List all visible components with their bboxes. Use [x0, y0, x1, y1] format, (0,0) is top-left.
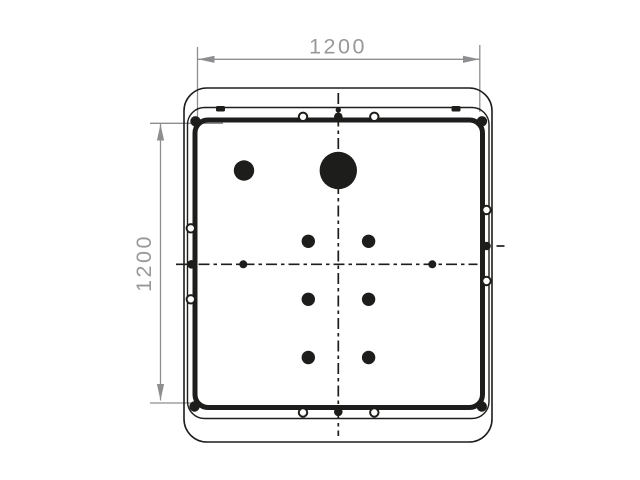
mount-hole — [362, 235, 375, 248]
mount-hole — [362, 293, 375, 306]
mount-hole — [302, 351, 315, 364]
fastener-hole-right-lower — [482, 277, 490, 285]
corner-fastener — [477, 401, 487, 411]
fastener-dot-bottom — [334, 408, 343, 417]
fastener-hole-bottom-right — [370, 408, 378, 416]
clip-tab-left — [216, 106, 225, 112]
dimension-height-label: 1200 — [132, 234, 156, 292]
fastener-dot-top — [334, 113, 343, 122]
fastener-hole-left-lower — [187, 295, 195, 303]
fastener-hole-bottom-left — [299, 408, 307, 416]
corner-fastener — [190, 116, 200, 126]
clip-tab-right — [452, 106, 461, 112]
arrowhead-right-icon — [463, 56, 480, 63]
fastener-hole-top-right — [370, 113, 378, 121]
fastener-hole-top-left — [299, 113, 307, 121]
dimension-height — [150, 123, 223, 403]
fastener-dot-right — [482, 242, 491, 251]
hole-large-center — [320, 152, 357, 189]
arrowhead-left-icon — [198, 56, 215, 63]
fastener-dot-left — [187, 260, 196, 269]
corner-fastener — [477, 116, 487, 126]
centerline-marker-dot-right — [428, 260, 436, 268]
arrowhead-up-icon — [157, 124, 164, 141]
hole-medium-left — [234, 160, 254, 180]
fastener-dot-top-rim — [336, 107, 341, 112]
corner-fastener — [189, 401, 199, 411]
mount-hole — [362, 351, 375, 364]
dimension-width-label: 1200 — [309, 35, 367, 59]
centerline-marker-dot-left — [239, 260, 247, 268]
fastener-hole-left-upper — [187, 224, 195, 232]
drawing-canvas: 1200 1200 — [0, 0, 640, 480]
arrowhead-down-icon — [157, 384, 164, 401]
mount-hole — [302, 293, 315, 306]
panel-technical-drawing: 1200 1200 — [0, 0, 640, 480]
mount-hole — [302, 235, 315, 248]
fastener-hole-right-upper — [482, 206, 490, 214]
